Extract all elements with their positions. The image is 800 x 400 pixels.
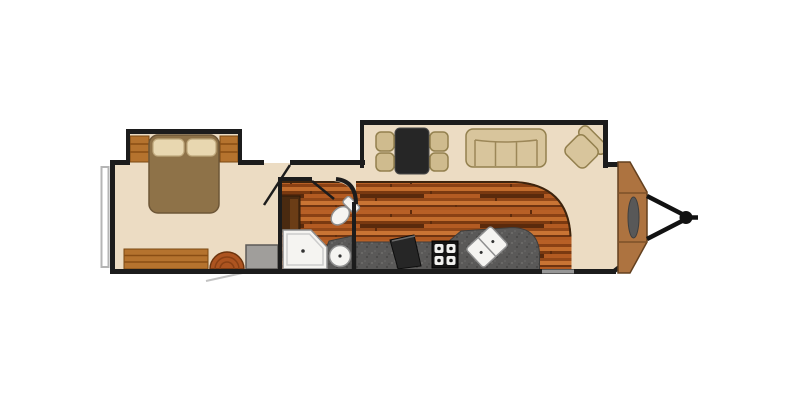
dinette-table — [395, 128, 429, 174]
nightstand-left — [130, 136, 149, 162]
dresser — [124, 249, 208, 269]
sofa-body — [466, 129, 546, 167]
nightstand-right — [220, 136, 238, 162]
dinette-slide-top-wall — [360, 120, 607, 125]
sofa — [466, 129, 546, 167]
dinette-slide-right-wall — [603, 120, 608, 168]
bedroom-slide-top-wall — [126, 129, 242, 134]
linen-cabinet — [281, 196, 300, 232]
entry-door-segment — [542, 270, 574, 274]
linen-cabinet-inner — [290, 199, 298, 229]
floor-plan-svg — [0, 0, 800, 400]
nightstand-right-body — [220, 136, 238, 162]
rear-wall — [110, 160, 115, 274]
bathroom-sink-drain — [338, 254, 341, 257]
top-wall-left — [110, 160, 128, 165]
dinette-chair — [430, 132, 448, 151]
bathroom-left-wall — [278, 177, 282, 269]
bottom-wall — [110, 269, 616, 274]
burner-center — [449, 247, 453, 251]
pillow-right — [187, 139, 216, 156]
bathroom-sink — [330, 246, 351, 267]
dinette-chair — [376, 132, 394, 151]
nightstand-left-body — [130, 136, 149, 162]
bedroom-slide-right-wall — [238, 129, 242, 165]
dinette-chair — [430, 153, 448, 171]
dinette-slide-left-wall — [360, 120, 364, 168]
wardrobe — [246, 245, 278, 269]
bathroom-right-wall — [352, 202, 356, 269]
bedroom-slide-left-wall — [126, 129, 130, 165]
rear-bumper — [102, 167, 109, 267]
top-wall-b — [290, 160, 365, 165]
shower-drain — [301, 249, 305, 253]
bed — [149, 135, 219, 213]
floor-plan-canvas — [0, 0, 800, 400]
burner-center — [437, 259, 441, 263]
dresser-body — [124, 249, 208, 269]
stove — [432, 241, 458, 268]
burner-center — [437, 247, 441, 251]
pillow-left — [153, 139, 184, 156]
hitch-ball — [680, 211, 693, 224]
burner-center — [449, 259, 453, 263]
dinette-chair — [376, 153, 394, 171]
top-wall-a — [238, 160, 264, 165]
tv — [628, 197, 639, 238]
